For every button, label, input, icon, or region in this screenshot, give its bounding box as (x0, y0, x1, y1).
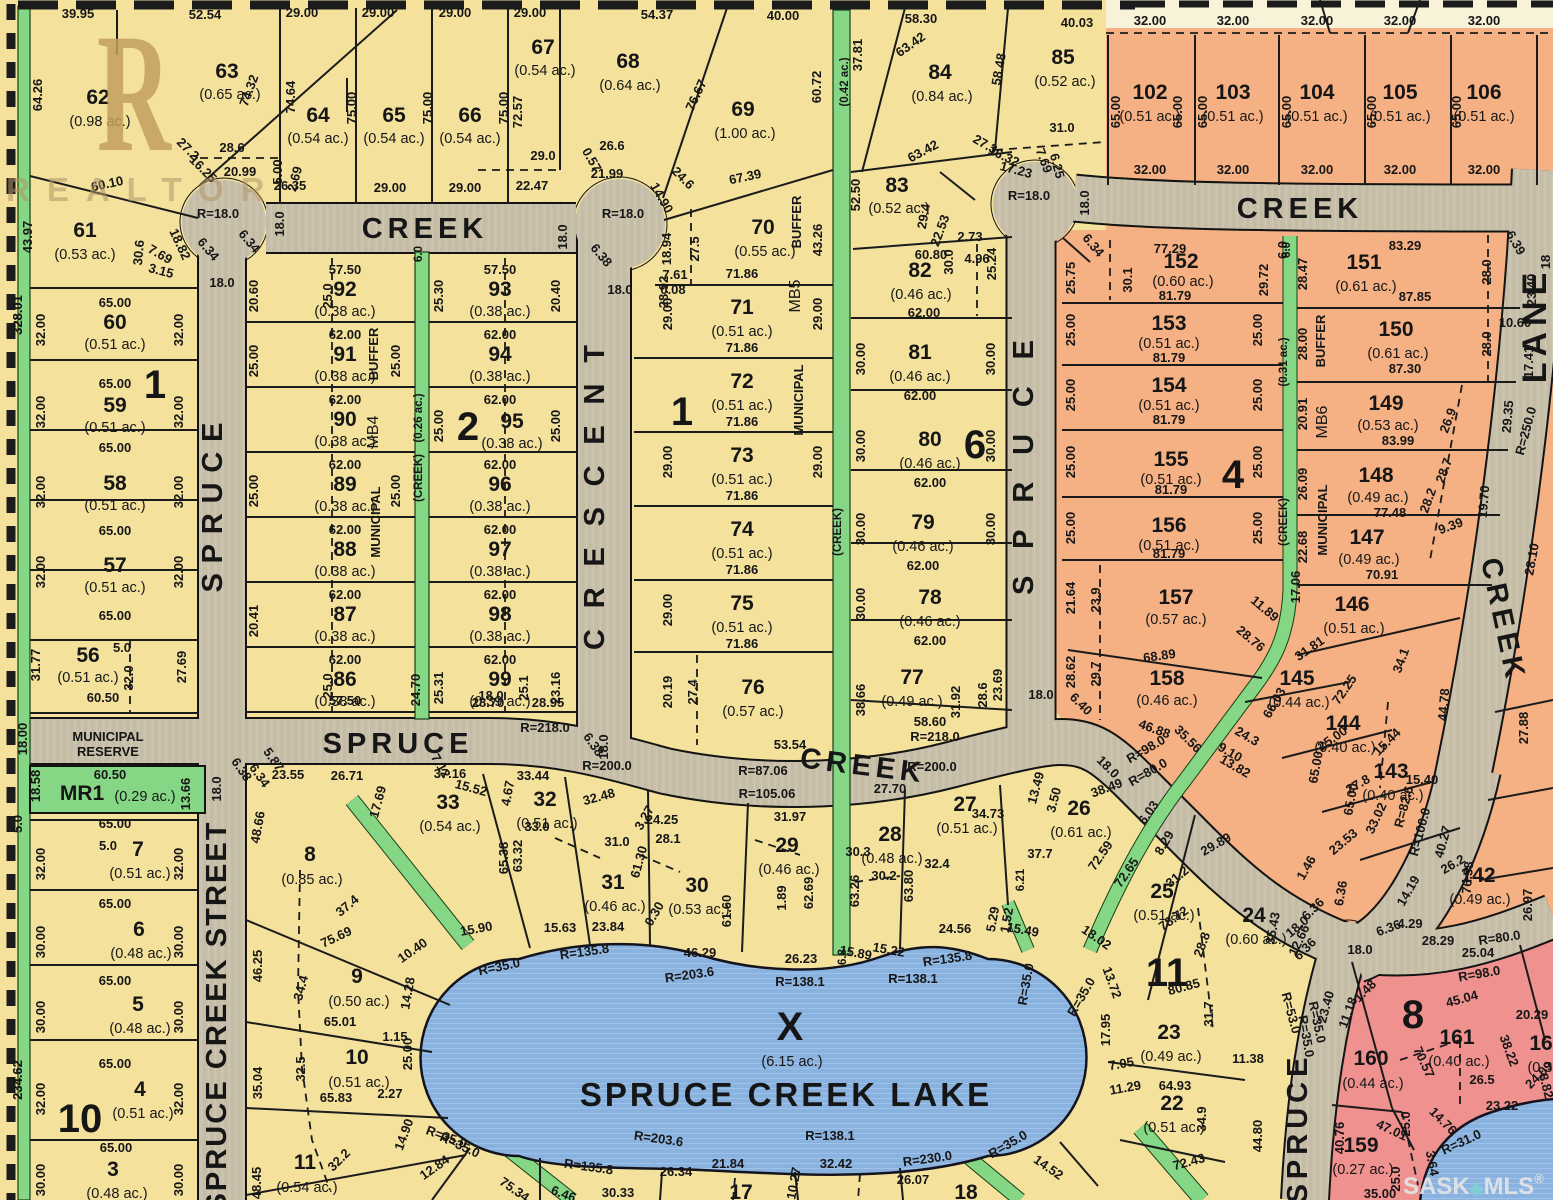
svg-text:(0.31 ac.): (0.31 ac.) (1278, 337, 1290, 386)
svg-text:22: 22 (1160, 1092, 1183, 1115)
svg-text:76.58: 76.58 (1459, 861, 1477, 895)
svg-text:25.00: 25.00 (1250, 446, 1265, 479)
svg-text:28.6: 28.6 (219, 140, 244, 155)
svg-text:65.00: 65.00 (99, 523, 132, 538)
svg-text:40.00: 40.00 (767, 8, 800, 23)
svg-text:32.00: 32.00 (33, 1083, 48, 1116)
svg-text:10: 10 (345, 1046, 368, 1069)
svg-text:8: 8 (304, 843, 316, 866)
svg-text:65.00: 65.00 (1279, 96, 1294, 129)
svg-text:32: 32 (533, 788, 556, 811)
svg-text:MB6: MB6 (1314, 405, 1331, 438)
svg-text:20.19: 20.19 (660, 676, 675, 709)
svg-text:CREEK: CREEK (1237, 193, 1364, 225)
svg-text:65.00: 65.00 (1108, 96, 1123, 129)
svg-text:28.6: 28.6 (975, 682, 990, 707)
svg-text:64: 64 (306, 104, 330, 127)
svg-text:(0.54 ac.): (0.54 ac.) (419, 819, 480, 835)
svg-text:29.00: 29.00 (286, 5, 319, 20)
svg-text:(0.46 ac.): (0.46 ac.) (584, 899, 645, 915)
svg-text:R=218.0: R=218.0 (910, 729, 960, 744)
svg-text:2: 2 (457, 405, 479, 449)
svg-text:25.24: 25.24 (984, 247, 999, 280)
svg-text:26.34: 26.34 (660, 1164, 693, 1179)
svg-text:86: 86 (333, 668, 356, 691)
svg-text:(0.51 ac.): (0.51 ac.) (1286, 109, 1347, 125)
svg-text:23.40: 23.40 (1524, 274, 1539, 307)
svg-text:(CREEK): (CREEK) (1278, 498, 1290, 546)
svg-text:30.00: 30.00 (171, 926, 186, 959)
svg-text:28.00: 28.00 (1295, 328, 1310, 361)
svg-text:33.0: 33.0 (524, 819, 549, 834)
svg-text:(0.57 ac.): (0.57 ac.) (1145, 612, 1206, 628)
svg-text:(0.27 ac.): (0.27 ac.) (1332, 1162, 1393, 1178)
svg-text:65: 65 (382, 104, 406, 127)
svg-text:26.09: 26.09 (1295, 468, 1310, 501)
svg-text:28.29: 28.29 (1422, 933, 1455, 948)
svg-text:(0.38 ac.): (0.38 ac.) (469, 369, 530, 385)
svg-text:23.55: 23.55 (272, 767, 305, 782)
svg-text:18.94: 18.94 (659, 232, 674, 265)
svg-text:25.00: 25.00 (400, 1038, 415, 1071)
svg-text:71.86: 71.86 (726, 340, 759, 355)
svg-text:18.0: 18.0 (1347, 942, 1372, 957)
svg-text:29.00: 29.00 (514, 5, 547, 20)
svg-text:26.5: 26.5 (1469, 1072, 1494, 1087)
svg-text:28.0: 28.0 (1479, 259, 1494, 284)
svg-text:26.97: 26.97 (1520, 889, 1535, 922)
svg-text:22.47: 22.47 (516, 178, 549, 193)
svg-text:33: 33 (436, 791, 459, 814)
svg-text:57.50: 57.50 (329, 262, 362, 277)
svg-text:(0.38 ac.): (0.38 ac.) (469, 499, 530, 515)
svg-text:(0.51 ac.): (0.51 ac.) (936, 821, 997, 837)
svg-text:(0.51 ac.): (0.51 ac.) (711, 546, 772, 562)
svg-text:62.00: 62.00 (484, 392, 517, 407)
svg-text:90: 90 (333, 408, 356, 431)
svg-text:11: 11 (294, 1151, 317, 1174)
svg-text:(0.51 ac.): (0.51 ac.) (84, 580, 145, 596)
svg-text:29.35: 29.35 (1499, 400, 1517, 434)
svg-text:35.04: 35.04 (250, 1066, 265, 1099)
svg-text:5.0: 5.0 (99, 838, 117, 853)
svg-text:328.01: 328.01 (10, 295, 25, 335)
svg-text:65.00: 65.00 (99, 376, 132, 391)
svg-text:R: R (97, 0, 172, 187)
svg-text:32.00: 32.00 (33, 314, 48, 347)
svg-text:13.66: 13.66 (178, 778, 193, 811)
svg-text:60: 60 (103, 311, 126, 334)
svg-text:65.00: 65.00 (1449, 96, 1464, 129)
svg-text:(0.53 ac.): (0.53 ac.) (1357, 418, 1418, 434)
svg-text:R=218.0: R=218.0 (520, 720, 570, 735)
svg-text:78: 78 (918, 586, 942, 609)
svg-text:(0.49 ac.): (0.49 ac.) (1449, 892, 1510, 908)
svg-text:74: 74 (730, 518, 754, 541)
svg-text:32.00: 32.00 (33, 556, 48, 589)
svg-text:(0.51 ac.): (0.51 ac.) (84, 420, 145, 436)
svg-text:98: 98 (488, 603, 512, 626)
svg-text:69: 69 (731, 98, 754, 121)
svg-text:6.0: 6.0 (1281, 242, 1293, 258)
svg-text:18.00: 18.00 (15, 723, 30, 756)
svg-text:9: 9 (351, 965, 363, 988)
svg-text:72: 72 (730, 370, 753, 393)
svg-text:MUNICIPAL: MUNICIPAL (368, 486, 383, 557)
svg-text:62.00: 62.00 (914, 633, 947, 648)
svg-text:(0.38 ac.): (0.38 ac.) (314, 629, 375, 645)
svg-text:32.00: 32.00 (171, 848, 186, 881)
svg-text:24: 24 (1242, 904, 1266, 927)
svg-text:31.0: 31.0 (1049, 120, 1074, 135)
svg-text:147: 147 (1349, 526, 1384, 549)
svg-text:27.4: 27.4 (685, 679, 700, 705)
svg-text:(0.46 ac.): (0.46 ac.) (890, 287, 951, 303)
svg-text:161: 161 (1439, 1026, 1474, 1049)
svg-text:102: 102 (1132, 81, 1167, 104)
svg-text:(CREEK): (CREEK) (413, 454, 425, 502)
svg-text:37.7: 37.7 (1027, 846, 1052, 861)
svg-text:23.84: 23.84 (592, 919, 625, 934)
svg-text:18: 18 (954, 1181, 978, 1200)
svg-text:29.00: 29.00 (362, 5, 395, 20)
svg-text:25.00: 25.00 (1063, 379, 1078, 412)
svg-text:71.86: 71.86 (726, 266, 759, 281)
svg-text:65.00: 65.00 (1195, 96, 1210, 129)
svg-text:32.42: 32.42 (820, 1156, 853, 1171)
svg-text:39.95: 39.95 (62, 6, 95, 21)
svg-text:(0.49 ac.): (0.49 ac.) (881, 694, 942, 710)
svg-text:57.50: 57.50 (484, 262, 517, 277)
svg-text:17.41: 17.41 (1521, 346, 1536, 379)
svg-text:25.00: 25.00 (246, 345, 261, 378)
svg-text:28: 28 (878, 823, 902, 846)
svg-text:95: 95 (500, 410, 524, 433)
svg-text:28.92: 28.92 (656, 276, 671, 309)
svg-text:149: 149 (1368, 392, 1403, 415)
svg-text:75.00: 75.00 (344, 92, 359, 125)
svg-text:(0.40 ac.): (0.40 ac.) (1428, 1054, 1489, 1070)
svg-text:24.70: 24.70 (408, 674, 423, 707)
svg-text:73: 73 (730, 444, 753, 467)
svg-text:6: 6 (133, 918, 145, 941)
svg-text:25.31: 25.31 (431, 672, 446, 705)
svg-text:MUNICIPAL: MUNICIPAL (1315, 484, 1330, 555)
svg-text:11.38: 11.38 (1232, 1051, 1264, 1066)
svg-text:(0.38 ac.): (0.38 ac.) (481, 436, 542, 452)
svg-text:77: 77 (900, 666, 923, 689)
svg-text:SPRUCE CREEK STREET: SPRUCE CREEK STREET (201, 818, 233, 1200)
svg-text:40.76: 40.76 (1332, 1122, 1347, 1155)
svg-text:29.00: 29.00 (660, 446, 675, 479)
svg-text:32.00: 32.00 (1468, 162, 1501, 177)
svg-text:18.0: 18.0 (607, 282, 632, 297)
svg-text:81.79: 81.79 (1153, 546, 1186, 561)
svg-text:18.0: 18.0 (596, 734, 611, 759)
svg-text:32.00: 32.00 (171, 396, 186, 429)
svg-text:32.00: 32.00 (1384, 162, 1417, 177)
svg-text:23.69: 23.69 (990, 669, 1005, 702)
svg-text:34.73: 34.73 (972, 806, 1005, 821)
svg-text:87.85: 87.85 (1399, 289, 1432, 304)
svg-text:25.00: 25.00 (1063, 512, 1078, 545)
svg-text:(0.38 ac.): (0.38 ac.) (314, 499, 375, 515)
svg-text:25.0: 25.0 (320, 673, 335, 698)
svg-text:30.00: 30.00 (33, 1164, 48, 1197)
svg-text:BUFFER: BUFFER (789, 195, 804, 248)
svg-text:43.97: 43.97 (20, 221, 35, 254)
svg-text:62.69: 62.69 (801, 877, 816, 910)
svg-text:(0.51 ac.): (0.51 ac.) (711, 398, 772, 414)
svg-text:81: 81 (908, 341, 932, 364)
svg-text:10: 10 (58, 1097, 103, 1141)
svg-text:10.60: 10.60 (1499, 315, 1532, 330)
svg-text:30.00: 30.00 (983, 513, 998, 546)
svg-text:60.50: 60.50 (87, 690, 120, 705)
svg-text:32.00: 32.00 (1384, 13, 1417, 28)
svg-text:X: X (777, 1005, 804, 1049)
svg-text:32.00: 32.00 (1301, 13, 1334, 28)
svg-text:30: 30 (685, 874, 708, 897)
svg-text:27.88: 27.88 (1516, 712, 1531, 745)
svg-text:62.00: 62.00 (484, 522, 517, 537)
svg-text:(0.38 ac.): (0.38 ac.) (469, 564, 530, 580)
svg-text:52.54: 52.54 (189, 7, 222, 22)
svg-text:93: 93 (488, 278, 511, 301)
svg-text:BUFFER: BUFFER (1313, 314, 1328, 367)
svg-text:30.00: 30.00 (33, 926, 48, 959)
svg-text:32.00: 32.00 (1301, 162, 1334, 177)
svg-text:32.00: 32.00 (1468, 13, 1501, 28)
svg-text:(0.48 ac.): (0.48 ac.) (109, 1021, 170, 1037)
svg-text:83.29: 83.29 (1389, 238, 1422, 253)
svg-text:32.00: 32.00 (33, 476, 48, 509)
svg-text:29: 29 (775, 834, 798, 857)
svg-text:71.86: 71.86 (726, 488, 759, 503)
svg-text:31.0: 31.0 (604, 834, 629, 849)
svg-text:62.00: 62.00 (484, 652, 517, 667)
svg-text:65.00: 65.00 (99, 1056, 132, 1071)
svg-text:29.00: 29.00 (449, 180, 482, 195)
svg-text:(0.46 ac.): (0.46 ac.) (1136, 693, 1197, 709)
svg-text:5: 5 (132, 993, 144, 1016)
svg-text:25.1: 25.1 (516, 675, 531, 700)
svg-text:65.00: 65.00 (99, 896, 132, 911)
svg-text:18.58: 18.58 (28, 770, 43, 803)
svg-text:20.41: 20.41 (246, 605, 261, 638)
svg-text:32.00: 32.00 (171, 476, 186, 509)
svg-text:18.0: 18.0 (1028, 687, 1053, 702)
svg-text:71: 71 (730, 296, 754, 319)
svg-text:94: 94 (488, 343, 512, 366)
svg-text:91: 91 (333, 343, 357, 366)
svg-text:26: 26 (1067, 797, 1090, 820)
svg-text:22.68: 22.68 (1295, 531, 1310, 564)
svg-text:96: 96 (488, 473, 511, 496)
svg-text:(0.38 ac.): (0.38 ac.) (469, 304, 530, 320)
svg-text:3: 3 (107, 1158, 119, 1181)
svg-text:(0.31: (0.31 (1527, 1060, 1553, 1076)
svg-text:25.00: 25.00 (431, 410, 446, 443)
svg-text:64.26: 64.26 (30, 79, 45, 112)
svg-text:158: 158 (1149, 667, 1184, 690)
svg-text:1.89: 1.89 (774, 885, 789, 910)
svg-text:40.03: 40.03 (1061, 15, 1094, 30)
svg-text:R=18.0: R=18.0 (197, 206, 239, 221)
svg-text:150: 150 (1378, 318, 1413, 341)
svg-text:30.00: 30.00 (171, 1164, 186, 1197)
svg-text:21.84: 21.84 (712, 1156, 745, 1171)
svg-text:(0.46 ac.): (0.46 ac.) (899, 614, 960, 630)
svg-text:104: 104 (1299, 81, 1334, 104)
svg-text:(1.00 ac.): (1.00 ac.) (714, 126, 775, 142)
svg-text:REALTOR: REALTOR (6, 171, 281, 208)
svg-text:26.07: 26.07 (897, 1172, 930, 1187)
svg-text:37.16: 37.16 (434, 766, 467, 781)
svg-text:29.0: 29.0 (530, 148, 555, 163)
svg-text:28.95: 28.95 (532, 695, 565, 710)
svg-text:21.64: 21.64 (1063, 581, 1078, 614)
svg-text:32.00: 32.00 (171, 314, 186, 347)
svg-text:2.27: 2.27 (377, 1086, 402, 1101)
svg-text:R=138.1: R=138.1 (805, 1128, 855, 1143)
svg-text:63.26: 63.26 (847, 875, 862, 908)
svg-text:62.00: 62.00 (329, 327, 362, 342)
svg-text:32.00: 32.00 (33, 848, 48, 881)
svg-text:103: 103 (1215, 81, 1250, 104)
svg-text:(0.49 ac.): (0.49 ac.) (1140, 1049, 1201, 1065)
svg-text:62.00: 62.00 (329, 522, 362, 537)
svg-text:71.86: 71.86 (726, 562, 759, 577)
svg-text:65.01: 65.01 (324, 1014, 357, 1029)
svg-text:30.00: 30.00 (33, 1001, 48, 1034)
svg-text:30.00: 30.00 (983, 430, 998, 463)
svg-text:63.80: 63.80 (901, 870, 916, 903)
svg-text:30.0: 30.0 (941, 249, 956, 274)
svg-text:5.0: 5.0 (10, 815, 25, 833)
svg-text:MUNICIPAL: MUNICIPAL (791, 364, 806, 435)
svg-text:R=200.0: R=200.0 (907, 759, 957, 774)
svg-text:(0.51 ac.): (0.51 ac.) (84, 337, 145, 353)
svg-text:25.00: 25.00 (1250, 379, 1265, 412)
svg-text:18.0: 18.0 (272, 211, 287, 236)
svg-text:25.75: 25.75 (1063, 262, 1078, 295)
svg-text:18.0: 18.0 (209, 776, 224, 801)
svg-text:(0.55 ac.): (0.55 ac.) (734, 244, 795, 260)
svg-text:MUNICIPAL: MUNICIPAL (72, 729, 143, 744)
svg-text:25.00: 25.00 (1250, 314, 1265, 347)
svg-text:62.00: 62.00 (484, 327, 517, 342)
svg-text:31.92: 31.92 (948, 686, 963, 719)
svg-text:6.3: 6.3 (837, 949, 849, 965)
svg-text:15.63: 15.63 (544, 920, 577, 935)
svg-text:19.70: 19.70 (1475, 485, 1493, 519)
svg-text:62.00: 62.00 (329, 457, 362, 472)
svg-text:(6.15 ac.): (6.15 ac.) (761, 1054, 822, 1070)
svg-text:92: 92 (333, 278, 356, 301)
svg-text:4: 4 (134, 1078, 146, 1101)
svg-text:32.00: 32.00 (171, 556, 186, 589)
svg-text:56: 56 (76, 644, 99, 667)
svg-text:60.72: 60.72 (809, 71, 824, 104)
svg-text:18.0: 18.0 (209, 275, 234, 290)
svg-text:28.62: 28.62 (1063, 656, 1078, 689)
svg-text:61.60: 61.60 (719, 895, 734, 928)
svg-text:MR1: MR1 (60, 782, 105, 805)
svg-text:60.50: 60.50 (94, 767, 127, 782)
svg-text:(0.51 ac.): (0.51 ac.) (1202, 109, 1263, 125)
svg-text:17: 17 (729, 1181, 752, 1200)
svg-text:(0.54 ac.): (0.54 ac.) (276, 1180, 337, 1196)
svg-text:1: 1 (671, 390, 693, 434)
svg-text:37.81: 37.81 (850, 39, 865, 72)
svg-text:29.7: 29.7 (1088, 661, 1103, 686)
svg-text:88: 88 (333, 538, 357, 561)
svg-text:R=138.1: R=138.1 (888, 971, 938, 986)
svg-text:31.77: 31.77 (28, 649, 43, 682)
svg-text:46.29: 46.29 (684, 945, 717, 960)
svg-text:30.6: 30.6 (130, 239, 147, 266)
svg-text:20.60: 20.60 (246, 280, 261, 313)
svg-text:32.4: 32.4 (924, 856, 950, 871)
svg-text:151: 151 (1346, 251, 1381, 274)
svg-text:234.62: 234.62 (10, 1060, 25, 1100)
svg-text:25.00: 25.00 (1250, 512, 1265, 545)
svg-text:62.00: 62.00 (484, 457, 517, 472)
svg-text:62.00: 62.00 (329, 392, 362, 407)
svg-text:SPRUCE: SPRUCE (323, 728, 474, 760)
svg-text:32.00: 32.00 (1217, 13, 1250, 28)
svg-text:(0.46 ac.): (0.46 ac.) (899, 456, 960, 472)
svg-text:27.69: 27.69 (174, 651, 189, 684)
svg-text:27.70: 27.70 (874, 781, 907, 796)
svg-text:CREEK: CREEK (362, 213, 489, 245)
svg-text:(0.51 ac.): (0.51 ac.) (711, 472, 772, 488)
svg-text:(0.61 ac.): (0.61 ac.) (1335, 279, 1396, 295)
svg-text:32.00: 32.00 (1134, 13, 1167, 28)
svg-text:(0.51 ac.): (0.51 ac.) (112, 1106, 173, 1122)
svg-text:28.1: 28.1 (655, 831, 680, 846)
svg-text:83: 83 (885, 174, 908, 197)
svg-text:62.00: 62.00 (329, 587, 362, 602)
svg-text:5.0: 5.0 (113, 640, 131, 655)
svg-text:25.0: 25.0 (320, 283, 335, 308)
svg-text:29.00: 29.00 (374, 180, 407, 195)
svg-text:(0.48 ac.): (0.48 ac.) (86, 1186, 147, 1200)
svg-text:58.30: 58.30 (905, 11, 938, 26)
svg-text:25.00: 25.00 (388, 475, 403, 508)
svg-text:(0.57 ac.): (0.57 ac.) (722, 704, 783, 720)
svg-text:32.5: 32.5 (293, 1056, 308, 1081)
svg-text:62.00: 62.00 (484, 587, 517, 602)
svg-text:143: 143 (1373, 760, 1408, 783)
svg-text:30.00: 30.00 (853, 343, 868, 376)
svg-text:(0.44 ac.): (0.44 ac.) (1342, 1076, 1403, 1092)
svg-text:4: 4 (1222, 453, 1245, 497)
svg-text:58: 58 (103, 472, 127, 495)
svg-text:70: 70 (751, 216, 774, 239)
svg-text:32.00: 32.00 (1217, 162, 1250, 177)
svg-text:(0.85 ac.): (0.85 ac.) (281, 872, 342, 888)
svg-text:1: 1 (144, 363, 166, 407)
svg-text:65.00: 65.00 (100, 1140, 133, 1155)
svg-text:25.00: 25.00 (246, 475, 261, 508)
svg-text:70.91: 70.91 (1366, 567, 1399, 582)
svg-text:30.2: 30.2 (871, 868, 896, 883)
svg-text:(0.48 ac.): (0.48 ac.) (110, 946, 171, 962)
svg-text:(0.61 ac.): (0.61 ac.) (1367, 346, 1428, 362)
svg-text:R=138.1: R=138.1 (775, 974, 825, 989)
